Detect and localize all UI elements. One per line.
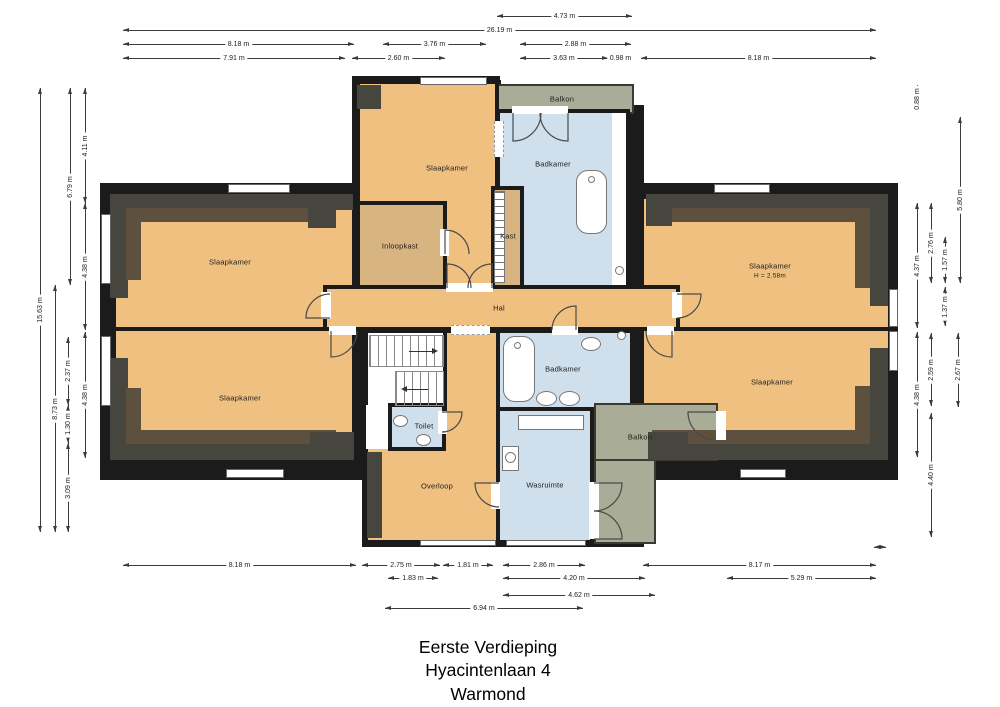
sloped-ceiling-band xyxy=(126,430,336,444)
sloped-ceiling-band xyxy=(126,388,141,430)
dimension-line: 4.20 m xyxy=(503,578,645,579)
window xyxy=(714,184,770,193)
dimension-label: 2.76 m xyxy=(928,229,936,256)
dimension-arrowhead xyxy=(123,56,129,60)
dashed-opening xyxy=(451,325,490,335)
dimension-arrowhead xyxy=(943,320,947,326)
sloped-ceiling-band xyxy=(855,386,870,430)
dimension-arrowhead xyxy=(66,443,70,449)
room-label: Inloopkast xyxy=(382,242,418,251)
dimension-arrowhead xyxy=(956,333,960,339)
dimension-arrowhead xyxy=(350,563,356,567)
sloped-ceiling-band xyxy=(870,348,888,460)
dimension-line: 4.11 m xyxy=(85,88,86,203)
window xyxy=(740,469,786,478)
dimension-label: 4.20 m xyxy=(560,575,587,583)
title-city: Warmond xyxy=(419,683,557,706)
dimension-arrowhead xyxy=(943,237,947,243)
room-label: H = 2.58m xyxy=(754,273,786,280)
window xyxy=(420,77,487,85)
sloped-ceiling-band xyxy=(367,452,382,538)
dimension-arrowhead xyxy=(123,28,129,32)
door-opening xyxy=(552,326,578,335)
window xyxy=(506,540,586,546)
dimension-line: 8.17 m xyxy=(643,565,876,566)
room-douche-strip xyxy=(612,113,626,287)
dimension-arrowhead xyxy=(929,277,933,283)
dimension-label: 4.40 m xyxy=(928,461,936,488)
dimension-label: 4.62 m xyxy=(565,592,592,600)
dimension-label: 4.38 m xyxy=(914,381,922,408)
dimension-label: 8.18 m xyxy=(745,55,772,63)
dimension-line: 1.30 m xyxy=(68,405,69,443)
dimension-arrowhead xyxy=(383,42,389,46)
dimension-label: 4.11 m xyxy=(82,132,90,159)
dimension-arrowhead xyxy=(915,322,919,328)
dimension-arrowhead xyxy=(958,277,962,283)
door-opening xyxy=(329,326,356,335)
fixture-circle xyxy=(505,452,516,463)
dimension-arrowhead xyxy=(432,576,438,580)
dimension-line: 7.91 m xyxy=(123,58,345,59)
door-opening xyxy=(512,106,568,114)
dimension-label: 15.63 m xyxy=(37,294,45,325)
dimension-label: 1.57 m xyxy=(942,246,950,273)
dimension-label: 0.88 m xyxy=(914,85,922,112)
dimension-arrowhead xyxy=(727,576,733,580)
dashed-opening xyxy=(494,121,504,157)
dimension-line: 2.88 m xyxy=(520,44,631,45)
dimension-arrowhead xyxy=(68,88,72,94)
sloped-ceiling-band xyxy=(126,208,336,222)
dimension-label: 1.83 m xyxy=(399,575,426,583)
dimension-arrowhead xyxy=(388,576,394,580)
dimension-line: 3.76 m xyxy=(383,44,486,45)
dimension-label: 5.29 m xyxy=(788,575,815,583)
dimension-label: 2.59 m xyxy=(928,356,936,383)
dimension-arrowhead xyxy=(639,576,645,580)
dimension-arrowhead xyxy=(649,593,655,597)
dimension-arrowhead xyxy=(385,606,391,610)
dimension-line: 8.18 m xyxy=(123,565,356,566)
dimension-line: 1.81 m xyxy=(443,565,493,566)
dimension-line: 6.79 m xyxy=(70,88,71,285)
window xyxy=(889,289,898,327)
fixture-circle xyxy=(514,342,521,349)
dimension-label: 2.88 m xyxy=(562,41,589,49)
door-opening xyxy=(446,283,493,292)
dimension-label: 2.86 m xyxy=(530,562,557,570)
dimension-label: 5.80 m xyxy=(957,186,965,213)
dimension-arrowhead xyxy=(362,563,368,567)
dimension-line: 2.86 m xyxy=(503,565,585,566)
dimension-arrowhead xyxy=(870,563,876,567)
sloped-ceiling-band xyxy=(310,432,354,460)
dimension-arrowhead xyxy=(520,56,526,60)
dimension-arrowhead xyxy=(480,42,486,46)
dimension-label: 0.98 m xyxy=(607,55,634,63)
dimension-arrowhead xyxy=(929,531,933,537)
dimension-arrowhead xyxy=(66,337,70,343)
room-label: Slaapkamer xyxy=(751,378,793,387)
room-label: Slaapkamer xyxy=(749,262,791,271)
window xyxy=(420,540,496,546)
dimension-line: 2.37 m xyxy=(68,337,69,405)
door-opening xyxy=(589,482,599,539)
dimension-label: 26.19 m xyxy=(484,27,515,35)
fixture-circle xyxy=(615,266,624,275)
dimension-arrowhead xyxy=(929,413,933,419)
dimension-arrowhead xyxy=(870,576,876,580)
room-label: Hal xyxy=(493,304,505,313)
room-label: Slaapkamer xyxy=(426,164,468,173)
dimension-arrowhead xyxy=(66,526,70,532)
door-opening xyxy=(716,411,726,440)
dimension-label: 8.73 m xyxy=(52,395,60,422)
plan-title: Eerste Verdieping Hyacintenlaan 4 Warmon… xyxy=(419,636,557,706)
door-opening xyxy=(491,482,500,509)
dimension-label: 2.75 m xyxy=(387,562,414,570)
dimension-arrowhead xyxy=(929,333,933,339)
stairs-direction-arrow xyxy=(406,389,428,390)
dimension-line xyxy=(874,547,886,548)
dimension-label: 3.76 m xyxy=(421,41,448,49)
dimension-line: 3.09 m xyxy=(68,443,69,532)
dimension-arrowhead xyxy=(956,401,960,407)
dimension-line: 8.18 m xyxy=(641,58,876,59)
dimension-label: 1.81 m xyxy=(454,562,481,570)
dimension-arrowhead xyxy=(497,14,503,18)
door-opening xyxy=(321,292,331,319)
fixture-circle xyxy=(617,331,626,340)
fixture-ellipse xyxy=(559,391,580,406)
dimension-line: 1.83 m xyxy=(388,578,438,579)
dimension-arrowhead xyxy=(643,563,649,567)
dimension-line: 26.19 m xyxy=(123,30,876,31)
title-street-address: Hyacintenlaan 4 xyxy=(419,659,557,682)
stairs-flight xyxy=(370,336,443,366)
room-label: Badkamer xyxy=(545,365,581,374)
dimension-arrowhead xyxy=(439,56,445,60)
dimension-arrowhead xyxy=(38,88,42,94)
dimension-label: 4.37 m xyxy=(914,252,922,279)
dimension-arrowhead xyxy=(83,452,87,458)
window xyxy=(101,336,111,406)
sloped-ceiling-band xyxy=(652,208,870,222)
dimension-label: 3.63 m xyxy=(550,55,577,63)
dimension-arrowhead xyxy=(915,451,919,457)
fixture-ellipse xyxy=(581,337,601,351)
window xyxy=(228,184,290,193)
dimension-line: 4.38 m xyxy=(85,203,86,330)
stairs-direction-arrow xyxy=(401,386,407,392)
dimension-label: 4.38 m xyxy=(82,381,90,408)
fixture-ellipse xyxy=(536,391,557,406)
dimension-arrowhead xyxy=(503,563,509,567)
dimension-label: 8.18 m xyxy=(225,41,252,49)
dimension-line: 2.76 m xyxy=(931,203,932,283)
room-label: Balkon xyxy=(628,433,652,442)
dimension-arrowhead xyxy=(123,42,129,46)
dimension-arrowhead xyxy=(123,563,129,567)
window xyxy=(101,214,111,284)
dimension-line: 5.29 m xyxy=(727,578,876,579)
dimension-line: 4.38 m xyxy=(85,332,86,458)
dimension-arrowhead xyxy=(348,42,354,46)
dimension-line: 0.88 m xyxy=(917,85,918,112)
dimension-line: 0.98 m xyxy=(608,58,633,59)
dimension-arrowhead xyxy=(68,279,72,285)
room-label: Wasruimte xyxy=(526,481,563,490)
room-label: Kast xyxy=(500,232,516,241)
dimension-arrowhead xyxy=(53,285,57,291)
dimension-arrowhead xyxy=(339,56,345,60)
dimension-arrowhead xyxy=(870,56,876,60)
dimension-arrowhead xyxy=(929,203,933,209)
dimension-arrowhead xyxy=(625,42,631,46)
dimension-arrowhead xyxy=(83,324,87,330)
dimension-label: 2.60 m xyxy=(385,55,412,63)
dimension-line: 2.59 m xyxy=(931,333,932,406)
dimension-line: 4.38 m xyxy=(917,332,918,457)
dimension-arrowhead xyxy=(579,563,585,567)
dimension-arrowhead xyxy=(958,117,962,123)
dimension-line: 1.37 m xyxy=(945,287,946,326)
room-label: Badkamer xyxy=(535,160,571,169)
dimension-line: 3.63 m xyxy=(520,58,608,59)
dimension-arrowhead xyxy=(83,88,87,94)
dimension-label: 3.09 m xyxy=(65,474,73,501)
dimension-arrowhead xyxy=(880,545,886,549)
dimension-arrowhead xyxy=(53,526,57,532)
door-opening xyxy=(647,326,674,335)
sloped-ceiling-band xyxy=(855,208,870,288)
dimension-arrowhead xyxy=(870,28,876,32)
fixture-ellipse xyxy=(393,415,408,427)
dimension-arrowhead xyxy=(577,606,583,610)
dimension-label: 4.38 m xyxy=(82,253,90,280)
stairs-flight xyxy=(396,372,443,405)
dimension-arrowhead xyxy=(915,203,919,209)
sloped-ceiling-band xyxy=(126,208,141,280)
door-opening xyxy=(438,411,447,434)
room-label: Toilet xyxy=(415,422,434,431)
dimension-label: 8.17 m xyxy=(746,562,773,570)
dimension-label: 6.79 m xyxy=(67,173,75,200)
stairs-direction-arrow xyxy=(432,348,438,354)
sloped-ceiling-band xyxy=(870,194,888,306)
room-label: Slaapkamer xyxy=(219,394,261,403)
dimension-label: 1.37 m xyxy=(942,293,950,320)
dimension-arrowhead xyxy=(503,576,509,580)
dimension-label: 8.18 m xyxy=(226,562,253,570)
dimension-label: 7.91 m xyxy=(220,55,247,63)
room-label: Slaapkamer xyxy=(209,258,251,267)
dimension-arrowhead xyxy=(943,277,947,283)
window xyxy=(226,469,284,478)
dimension-label: 2.37 m xyxy=(65,357,73,384)
dimension-arrowhead xyxy=(434,563,440,567)
room-stair-landing xyxy=(366,405,390,449)
dimension-arrowhead xyxy=(83,203,87,209)
stairs-direction-arrow xyxy=(409,351,433,352)
dimension-arrowhead xyxy=(352,56,358,60)
floorplan-canvas: 4.73 m26.19 m8.18 m3.76 m2.88 m7.91 m2.6… xyxy=(0,0,1000,707)
dimension-label: 1.30 m xyxy=(65,410,73,437)
room-label: Balkon xyxy=(550,95,574,104)
dimension-line: 15.63 m xyxy=(40,88,41,532)
dimension-arrowhead xyxy=(83,332,87,338)
dimension-arrowhead xyxy=(641,56,647,60)
sloped-ceiling-band xyxy=(648,432,688,460)
dimension-arrowhead xyxy=(443,563,449,567)
dimension-arrowhead xyxy=(626,14,632,18)
fixture-ellipse xyxy=(416,434,431,446)
dimension-line: 4.37 m xyxy=(917,203,918,328)
dimension-arrowhead xyxy=(943,287,947,293)
dimension-line: 4.73 m xyxy=(497,16,632,17)
fixture-circle xyxy=(588,176,595,183)
dimension-line: 1.57 m xyxy=(945,237,946,283)
dimension-label: 6.94 m xyxy=(470,605,497,613)
sloped-ceiling-band xyxy=(357,85,381,109)
title-floor-name: Eerste Verdieping xyxy=(419,636,557,659)
room-label: Overloop xyxy=(421,482,453,491)
dimension-line: 8.73 m xyxy=(55,285,56,532)
dimension-arrowhead xyxy=(503,593,509,597)
dimension-arrowhead xyxy=(929,400,933,406)
dimension-label: 4.73 m xyxy=(551,13,578,21)
door-opening xyxy=(672,292,682,318)
dimension-arrowhead xyxy=(487,563,493,567)
sloped-ceiling-band xyxy=(308,194,336,228)
dimension-line: 2.75 m xyxy=(362,565,440,566)
dimension-line: 6.94 m xyxy=(385,608,583,609)
dimension-arrowhead xyxy=(915,332,919,338)
dimension-label: 2.67 m xyxy=(955,356,963,383)
fixture-rect xyxy=(518,415,584,430)
dimension-line: 4.62 m xyxy=(503,595,655,596)
dimension-line: 2.67 m xyxy=(958,333,959,407)
dimension-arrowhead xyxy=(520,42,526,46)
dimension-line: 8.18 m xyxy=(123,44,354,45)
dimension-line: 5.80 m xyxy=(960,117,961,283)
dimension-arrowhead xyxy=(38,526,42,532)
dimension-line: 2.60 m xyxy=(352,58,445,59)
window xyxy=(889,331,898,371)
dimension-line: 4.40 m xyxy=(931,413,932,537)
door-opening xyxy=(440,229,449,256)
sloped-ceiling-band xyxy=(646,194,672,226)
